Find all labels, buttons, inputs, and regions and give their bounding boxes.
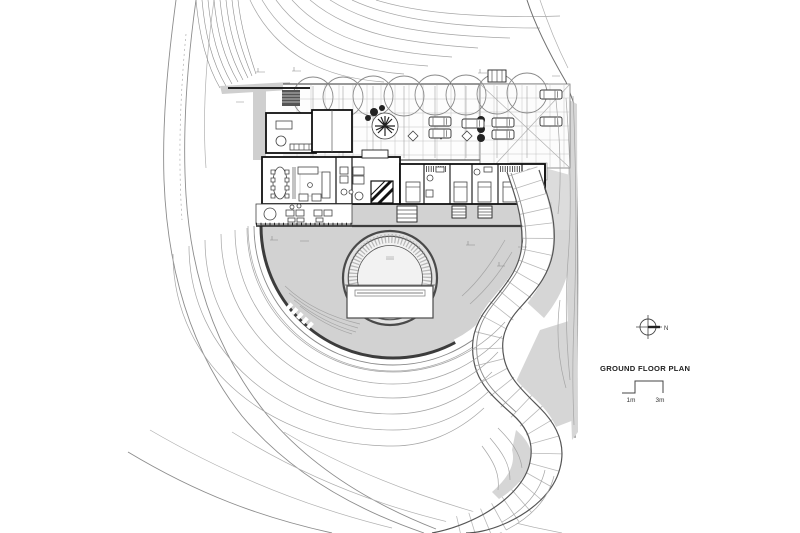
outdoor-terrace — [256, 204, 352, 226]
stair — [371, 181, 393, 203]
entry-porch — [362, 150, 388, 158]
title-block: N GROUND FLOOR PLAN 1m 3m — [600, 315, 690, 404]
scale-label-1m: 1m — [627, 397, 636, 404]
north-label: N — [664, 326, 668, 332]
ground-floor-plan-svg: N GROUND FLOOR PLAN 1m 3m — [0, 0, 800, 533]
scale-bar: 1m 3m — [622, 381, 664, 404]
entry-steps — [282, 90, 300, 106]
site-plan-drawing: N GROUND FLOOR PLAN 1m 3m — [0, 0, 800, 533]
scale-label-3m: 3m — [656, 397, 665, 404]
pool — [347, 286, 433, 318]
north-arrow-icon — [636, 315, 662, 339]
studio-room — [266, 113, 316, 153]
plan-title: GROUND FLOOR PLAN — [600, 364, 690, 373]
circular-court — [343, 231, 437, 325]
garage — [312, 110, 352, 152]
